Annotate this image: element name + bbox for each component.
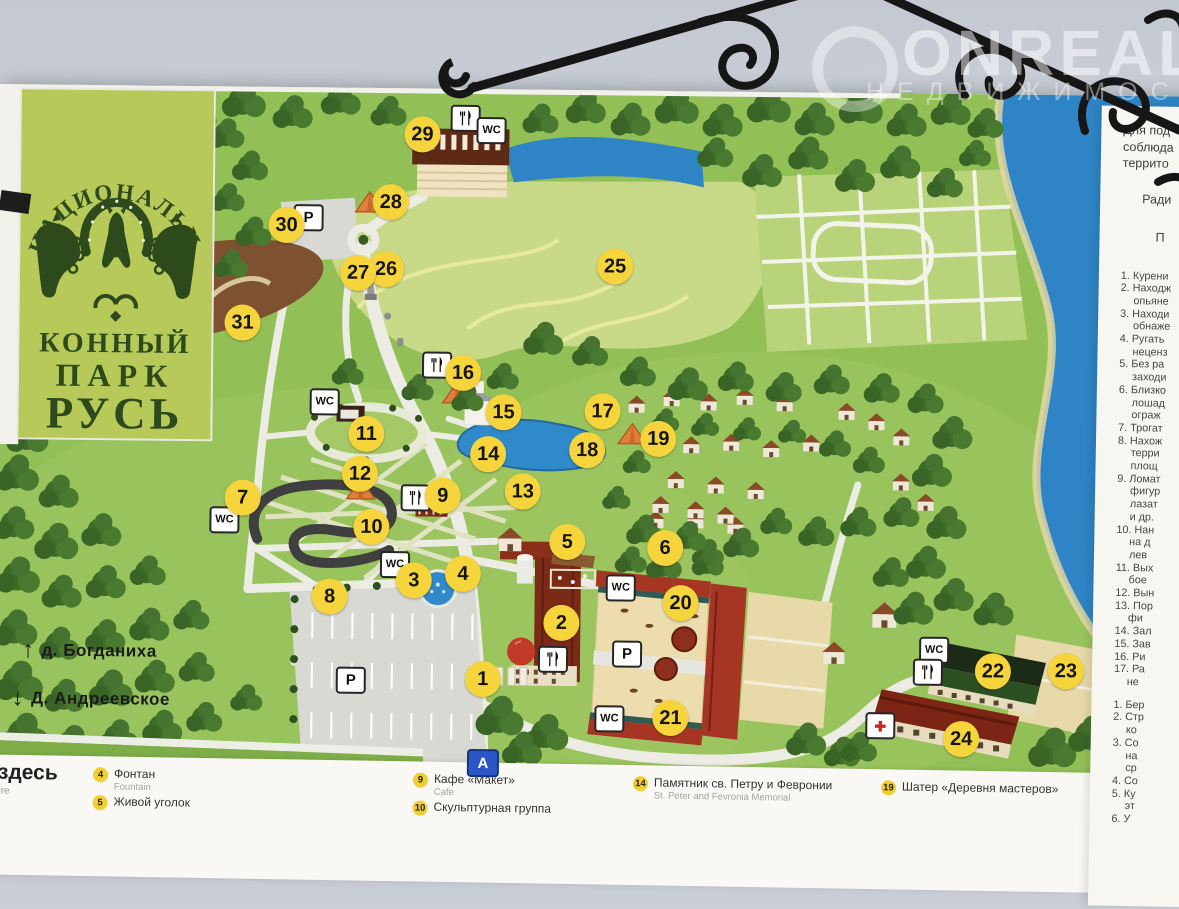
map-marker-7: 7 xyxy=(224,479,260,515)
sign-board: НАЦИОНАЛЬНЫЙ xyxy=(0,84,1179,877)
map-marker-12: 12 xyxy=(342,456,378,492)
legend-item-5: 5Живой уголок xyxy=(92,794,190,812)
map-marker-19: 19 xyxy=(640,421,676,457)
logo-panel: НАЦИОНАЛЬНЫЙ xyxy=(18,89,214,439)
legend-number: 9 xyxy=(413,772,428,787)
map-marker-8: 8 xyxy=(311,578,347,614)
map-marker-15: 15 xyxy=(485,394,521,430)
watermark-brand: ONREAL xyxy=(902,16,1179,90)
photo-of-park-map-sign: { "watermark": { "brand": "ONREAL", "sub… xyxy=(0,0,1179,805)
map-marker-9: 9 xyxy=(425,477,461,513)
rules-title: П xyxy=(1155,230,1179,247)
legend-number: 5 xyxy=(92,795,107,810)
village-label: ↑д. Богданиха xyxy=(22,640,157,661)
legend-number: 19 xyxy=(881,780,896,795)
legend-item-14: 14Памятник св. Петру и ФевронииSt. Peter… xyxy=(633,775,833,804)
map-marker-21: 21 xyxy=(652,700,688,736)
park-logo: НАЦИОНАЛЬНЫЙ xyxy=(18,89,214,439)
rules-header-line: террито xyxy=(1123,155,1179,175)
legend-label-ru: Скульптурная группа xyxy=(433,800,551,816)
legend-bar: Вы здесь You are here 4ФонтанFountain5Жи… xyxy=(0,753,1179,895)
logo-flourish xyxy=(95,296,136,309)
logo-word-rus: РУСЬ xyxy=(45,387,183,438)
legend-label-ru: Памятник св. Петру и Февронии xyxy=(654,775,833,792)
legend-number: 4 xyxy=(93,767,108,782)
map-marker-6: 6 xyxy=(647,530,683,566)
map-marker-30: 30 xyxy=(268,207,304,243)
rules-list-2: 1. Бер2. Стрко3. Сонаср4. Со5. Куэт6. У xyxy=(1111,699,1179,829)
parking-sign: P xyxy=(336,667,366,694)
map-marker-14: 14 xyxy=(470,436,506,472)
wc-sign: WC xyxy=(476,117,506,144)
rules-list-1: 1. Курени2. Находжопьяне3. Находиобнаже4… xyxy=(1114,269,1179,691)
map-marker-28: 28 xyxy=(373,184,409,220)
map-marker-24: 24 xyxy=(943,721,979,757)
legend-item-4: 4ФонтанFountain xyxy=(93,766,156,793)
map-marker-10: 10 xyxy=(353,509,389,545)
restaurant-sign xyxy=(913,659,943,686)
map-marker-3: 3 xyxy=(396,562,432,598)
legend-label-ru: Шатер «Деревня мастеров» xyxy=(902,780,1059,797)
legend-label-en: St. Peter and Fevronia Memorial xyxy=(654,790,833,804)
map-marker-31: 31 xyxy=(224,304,260,340)
map-marker-29: 29 xyxy=(404,116,440,152)
wc-sign: WC xyxy=(606,574,636,601)
you-are-here-label-en: You are here xyxy=(0,785,10,797)
legend-label-en: Cafe xyxy=(434,787,515,799)
map-marker-25: 25 xyxy=(597,248,633,284)
map-marker-18: 18 xyxy=(569,432,605,468)
legend-item-9: 9Кафе «Макет»Cafe xyxy=(413,771,515,799)
rules-line: не xyxy=(1114,676,1179,692)
restaurant-sign xyxy=(538,646,568,673)
parking-sign: P xyxy=(612,640,642,667)
legend-number: 14 xyxy=(633,776,648,791)
wc-sign: WC xyxy=(310,388,340,415)
legend-label-ru: Живой уголок xyxy=(113,794,190,809)
logo-word-konny: КОННЫЙ xyxy=(39,327,192,360)
horse-head-center xyxy=(102,204,131,268)
wc-sign: WC xyxy=(594,705,624,732)
legend-label-en: Fountain xyxy=(114,781,155,793)
screw xyxy=(1132,124,1139,131)
rules-panel: Для под соблюда террито Ради П 1. Курени… xyxy=(1088,106,1179,909)
map-marker-4: 4 xyxy=(445,556,481,592)
map-marker-20: 20 xyxy=(662,585,698,621)
legend-label-ru: Фонтан xyxy=(114,766,155,781)
you-are-here-label: Вы здесь xyxy=(0,760,58,786)
map-marker-27: 27 xyxy=(340,255,376,291)
map-marker-23: 23 xyxy=(1048,653,1084,689)
village-name: Д. Андреевское xyxy=(31,688,170,709)
legend-item-10: 10Скульптурная группа xyxy=(412,799,551,817)
horse-head-right xyxy=(149,213,198,299)
mounting-pole xyxy=(0,190,31,214)
map-marker-17: 17 xyxy=(584,393,620,429)
map-marker-22: 22 xyxy=(975,653,1011,689)
village-label: ↓Д. Андреевское xyxy=(11,688,169,710)
legend-number: 10 xyxy=(412,800,427,815)
village-name: д. Богданиха xyxy=(41,640,156,661)
first-aid-sign: ✚ xyxy=(865,712,895,739)
map-marker-2: 2 xyxy=(543,605,579,641)
map-marker-1: 1 xyxy=(465,661,501,697)
map-marker-5: 5 xyxy=(549,524,585,560)
rules-subheader: Ради xyxy=(1142,192,1179,209)
bus-stop-sign: A xyxy=(467,749,499,777)
map-marker-11: 11 xyxy=(348,416,384,452)
map-marker-16: 16 xyxy=(445,355,481,391)
map-marker-13: 13 xyxy=(505,473,541,509)
rules-line: 6. У xyxy=(1111,813,1179,829)
legend-item-19: 19Шатер «Деревня мастеров» xyxy=(881,779,1059,798)
